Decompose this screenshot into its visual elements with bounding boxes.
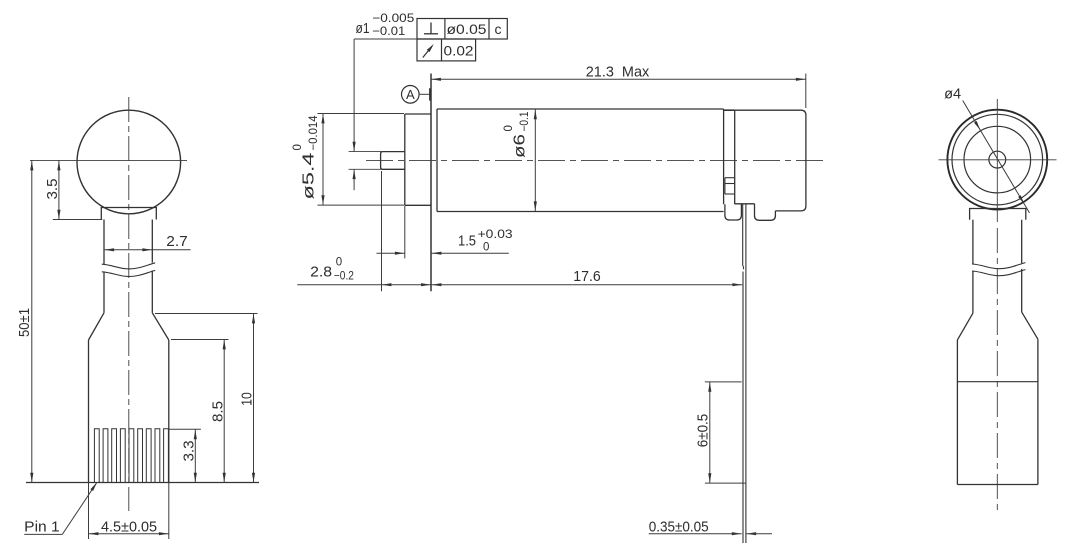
svg-text:+0.03: +0.03 <box>478 229 513 241</box>
svg-text:21.3 Max: 21.3 Max <box>586 64 650 81</box>
svg-text:6±0.5: 6±0.5 <box>694 414 711 448</box>
svg-text:A: A <box>406 87 415 102</box>
svg-text:17.6: 17.6 <box>573 268 601 285</box>
svg-text:2.8: 2.8 <box>310 263 332 280</box>
svg-text:8.5: 8.5 <box>209 401 226 422</box>
svg-text:0: 0 <box>336 256 342 268</box>
svg-text:−0.1: −0.1 <box>519 112 531 132</box>
svg-text:−0.014: −0.014 <box>308 115 320 151</box>
svg-text:2.7: 2.7 <box>166 233 188 250</box>
svg-text:3.5: 3.5 <box>44 179 61 200</box>
svg-text:50±1: 50±1 <box>16 308 33 337</box>
svg-text:c: c <box>495 21 502 37</box>
svg-text:1.5: 1.5 <box>458 233 476 250</box>
svg-text:0.02: 0.02 <box>444 43 474 59</box>
svg-text:Pin 1: Pin 1 <box>24 518 60 535</box>
svg-text:ø0.05: ø0.05 <box>447 21 487 37</box>
svg-text:−0.01: −0.01 <box>372 24 405 38</box>
svg-text:0.35±0.05: 0.35±0.05 <box>649 519 709 536</box>
svg-text:0: 0 <box>483 242 489 254</box>
svg-text:0: 0 <box>292 144 304 150</box>
svg-text:4.5±0.05: 4.5±0.05 <box>101 518 157 535</box>
svg-text:ø6: ø6 <box>512 134 529 158</box>
svg-text:3.3: 3.3 <box>180 441 197 462</box>
svg-text:10: 10 <box>239 392 256 406</box>
svg-text:0: 0 <box>503 125 515 131</box>
svg-text:ø1: ø1 <box>356 20 370 37</box>
svg-text:−0.005: −0.005 <box>372 11 414 25</box>
svg-text:ø5.4: ø5.4 <box>301 152 318 200</box>
svg-text:ø4: ø4 <box>944 86 961 103</box>
svg-text:−0.2: −0.2 <box>334 271 354 283</box>
